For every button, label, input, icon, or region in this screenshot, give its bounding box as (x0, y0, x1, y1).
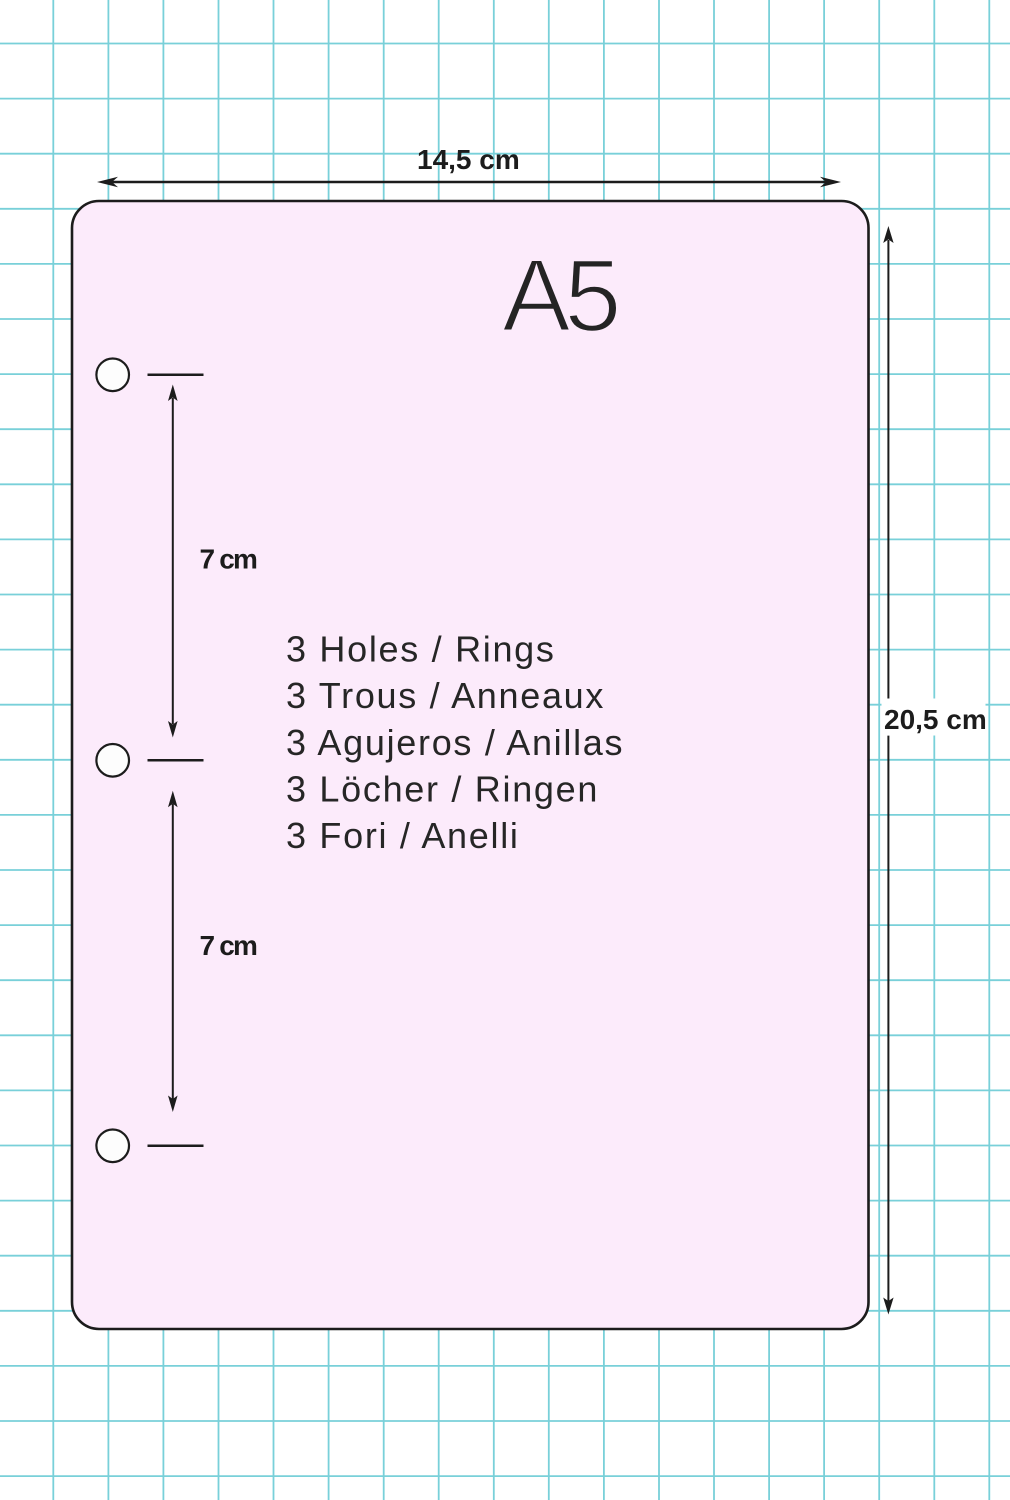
svg-text:7 cm: 7 cm (200, 930, 258, 961)
svg-text:3 Trous / Anneaux: 3 Trous / Anneaux (286, 675, 605, 716)
svg-text:3 Fori / Anelli: 3 Fori / Anelli (286, 815, 520, 856)
svg-text:14,5 cm: 14,5 cm (417, 144, 520, 175)
svg-text:20,5 cm: 20,5 cm (884, 704, 987, 735)
svg-text:3 Holes / Rings: 3 Holes / Rings (286, 629, 556, 670)
svg-text:3 Löcher / Ringen: 3 Löcher / Ringen (286, 768, 599, 809)
svg-text:A5: A5 (502, 238, 617, 353)
svg-text:3 Agujeros / Anillas: 3 Agujeros / Anillas (286, 722, 624, 763)
svg-text:7 cm: 7 cm (200, 544, 258, 575)
